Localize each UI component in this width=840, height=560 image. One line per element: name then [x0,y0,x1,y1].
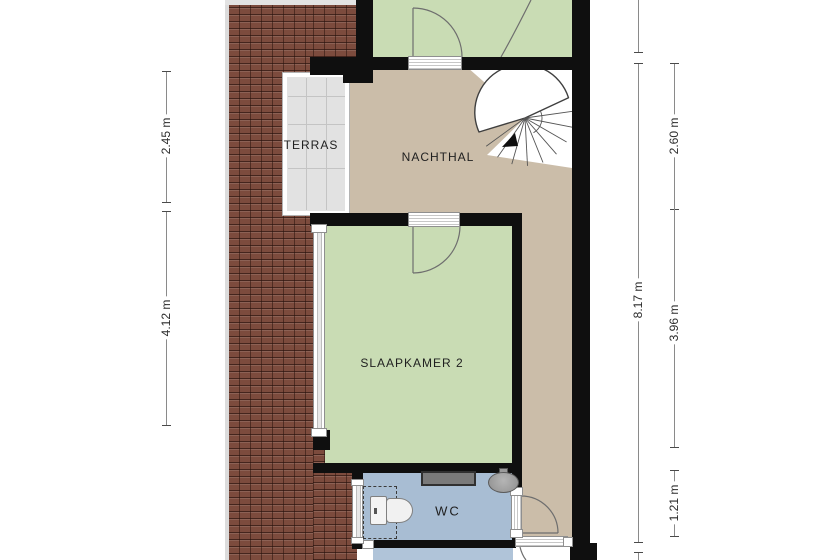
label-slaapkamer2: SLAAPKAMER 2 [360,356,463,370]
dim-tick [634,52,643,53]
window-slaapkamer-cap-bottom [311,428,327,437]
window-slaapkamer-cap-top [311,224,327,233]
window-wc-cap-top [351,479,364,486]
toilet-bowl [386,498,413,523]
sink [488,472,519,493]
label-wc: WC [435,504,461,519]
wall-bottom [352,540,516,548]
toilet-tank [370,496,387,525]
wall-right-outer [572,0,590,545]
dim-label-4-12: 4.12 m [159,297,173,340]
door-sill-slaapkamer [408,212,460,227]
door-sill-wc-hall [511,493,522,533]
wall-top-seg-left [373,57,408,70]
dim-tick [162,202,171,203]
door-jamb-wc-bottom [510,529,523,538]
label-nachthal: NACHTHAL [402,150,475,164]
door-sill-top-room [408,56,462,70]
door-arc-upper-right [501,0,531,57]
dim-tick [634,552,643,553]
wall-jut-b [343,57,373,83]
dim-tick [634,63,643,64]
toilet-tank-button [374,508,377,514]
dim-line-right-stub-top [638,0,639,52]
door-arc-wc-hall [521,496,558,533]
dim-tick [670,63,679,64]
dim-tick [634,542,643,543]
plan-linework [0,0,840,560]
wall-bottom-right-block [570,543,597,560]
floor-plan: TERRAS NACHTHAL SLAAPKAMER 2 WC 2.45 m 4… [0,0,840,560]
wall-mid-seg-right [460,213,522,226]
dim-tick [162,425,171,426]
dim-tick [670,470,679,471]
dim-tick [162,211,171,212]
door-arc-hall-bottom [520,547,526,560]
window-slaapkamer [313,230,325,430]
wall-top-seg-right [462,57,572,70]
wall-slaapkamer-bottom [313,463,512,473]
dim-label-8-17: 8.17 m [631,279,645,322]
door-arc-top-room [413,8,462,57]
radiator [421,471,476,486]
dim-label-2-60: 2.60 m [667,115,681,158]
wall-top-room-left [356,0,373,57]
dim-line-right-stub-bottom [638,552,639,560]
dim-label-3-96: 3.96 m [667,302,681,345]
door-jamb-hall-right [563,537,573,547]
dim-tick [162,71,171,72]
wall-slaapkamer-right [512,226,522,473]
dim-tick [670,447,679,448]
dim-label-1-21: 1.21 m [667,482,681,525]
window-wc [352,483,363,539]
door-arc-slaapkamer [413,226,460,273]
dim-tick [670,536,679,537]
label-terras: TERRAS [284,138,339,152]
dim-label-2-45: 2.45 m [159,115,173,158]
